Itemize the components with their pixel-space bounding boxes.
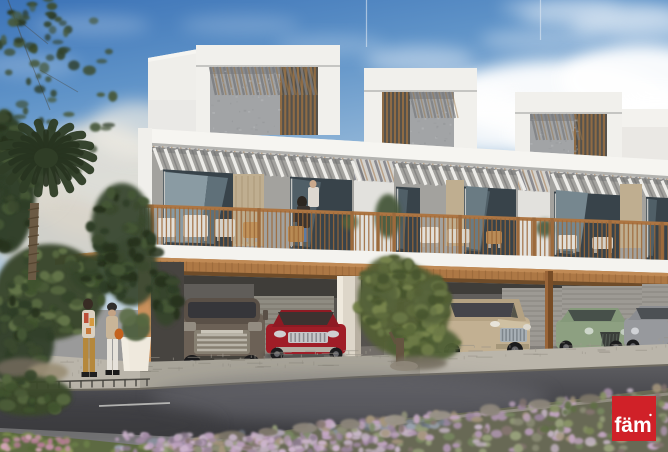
svg-text:fäm: fäm <box>614 414 651 437</box>
